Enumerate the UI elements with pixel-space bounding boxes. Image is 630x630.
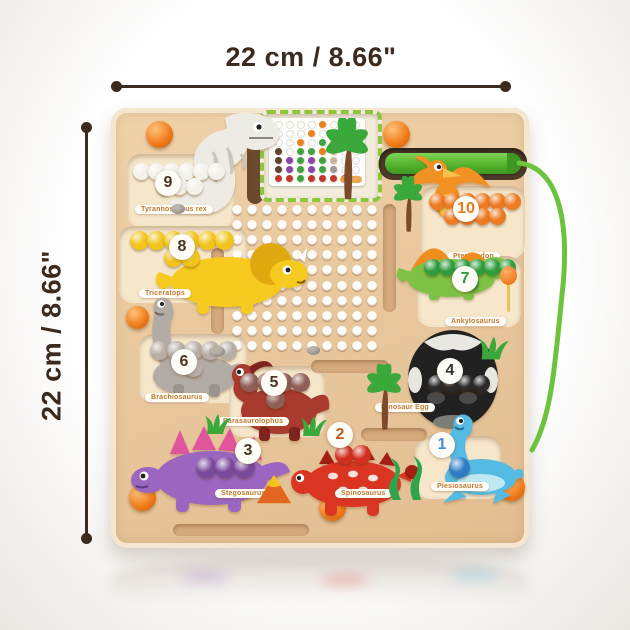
peg-hole [322,296,332,306]
grass-tuft [299,416,329,436]
count-badge: 4 [437,358,463,384]
peg-hole [262,326,272,336]
peg-hole [307,326,317,336]
peg-hole [367,311,377,321]
peg-hole [337,250,347,260]
peg-hole [352,281,362,291]
stegosaurus-ball [196,457,217,478]
peg-hole [352,296,362,306]
card-pattern-dot [308,148,315,155]
peg-hole [322,281,332,291]
count-badge: 3 [235,438,261,464]
peg-hole [322,326,332,336]
peg-hole [277,220,287,230]
peg-hole [367,281,377,291]
rock [209,346,225,357]
dino-name-label: Plesiosaurus [431,482,489,491]
peg-hole [337,326,347,336]
peg-hole [322,341,332,351]
peg-hole [277,326,287,336]
dino-name-label: Brachiosaurus [145,393,209,402]
peg-hole [322,235,332,245]
peg-hole [352,205,362,215]
peg-hole [322,311,332,321]
tyrannosaurus-rex-ball [186,178,203,195]
peg-hole [247,220,257,230]
grass-tuft [203,414,233,434]
plesiosaurus-ball [439,458,479,477]
count-badge: 9 [155,170,181,196]
plesiosaurus-ball [449,457,470,478]
peg-hole [352,220,362,230]
count-badge: 5 [261,370,287,396]
peg-hole [322,205,332,215]
maze-board: 9 Tyrannosaurus rex 8 Triceratops 10 Pte… [111,108,529,548]
product-photo-dinosaur-maze: { "annotations": { "top_width_label": "2… [0,0,630,630]
rock [307,346,320,355]
peg-hole [337,235,347,245]
brachiosaurus-ball [150,341,169,360]
armored-dino-balls [321,446,385,463]
peg-hole [337,341,347,351]
peg-hole [247,326,257,336]
peg-hole [247,341,257,351]
reflection-spot [180,572,230,582]
count-badge: 2 [327,422,353,448]
height-dimension-line [85,127,88,539]
peg-hole [337,311,347,321]
rock [171,204,185,214]
width-dimension-line [116,85,506,88]
peg-hole [337,205,347,215]
peg-hole [367,265,377,275]
count-badge: 1 [429,432,455,458]
grass-tuft [477,336,511,360]
peg-hole [322,265,332,275]
peg-hole [352,341,362,351]
peg-hole [367,296,377,306]
peg-hole [352,250,362,260]
dinosaur-egg-ball [473,375,490,392]
card-grid-dot [308,139,316,147]
peg-hole [262,341,272,351]
peg-hole [367,220,377,230]
palm-tree [316,118,378,202]
count-badge: 7 [452,266,478,292]
pteranodon-ball [504,193,521,210]
reflection-spot [450,570,500,580]
peg-hole [367,341,377,351]
peg-hole [277,341,287,351]
peg-hole [337,220,347,230]
peg-hole [337,265,347,275]
volcano [255,472,293,506]
stegosaurus-ball [215,457,236,478]
peg-hole [337,296,347,306]
peg-hole [367,235,377,245]
count-badge: 10 [453,196,479,222]
peg-hole [307,220,317,230]
peg-hole [307,205,317,215]
reflection-spot [320,575,370,585]
peg-hole [262,220,272,230]
peg-hole [367,205,377,215]
count-badge: 8 [169,234,195,260]
peg-hole [337,281,347,291]
peg-hole [367,250,377,260]
peg-hole [292,326,302,336]
peg-hole [292,341,302,351]
peg-hole [352,326,362,336]
seaweed [383,450,423,500]
peg-hole [352,311,362,321]
peg-hole [352,235,362,245]
peg-hole [232,220,242,230]
card-grid-dot [308,121,316,129]
width-dimension-label: 22 cm / 8.66" [116,42,506,73]
count-badge: 6 [171,349,197,375]
dino-name-label: Ankylosaurus [445,317,506,326]
maze-groove [173,524,309,536]
parasaurolophus-ball [291,373,310,392]
spinosaurus-ball [352,445,371,464]
peg-hole [352,265,362,275]
tyrannosaurus-rex-ball [208,163,225,180]
card-pattern-dot [308,175,315,182]
peg-hole [292,220,302,230]
peg-hole [367,326,377,336]
orange-ball [383,121,410,148]
peg-hole [322,250,332,260]
board-reflection [111,556,529,614]
tyrannosaurus-illustration [157,108,307,218]
card-pattern-dot [308,130,315,137]
palm-tree [359,364,409,432]
height-dimension-label: 22 cm / 8.66" [37,241,68,431]
card-pattern-dot [308,157,315,164]
peg-hole [322,220,332,230]
balloon [499,266,519,312]
triceratops-ball [215,231,234,250]
card-pattern-dot [308,166,315,173]
palm-tree [387,176,429,234]
